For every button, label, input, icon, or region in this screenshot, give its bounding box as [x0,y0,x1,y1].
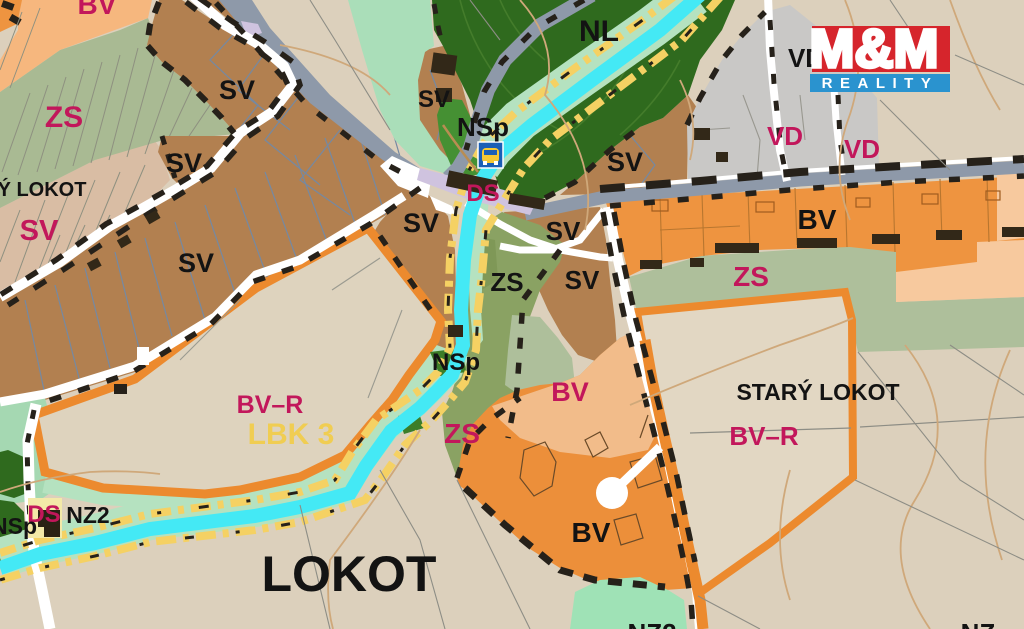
svg-text:NZ: NZ [961,618,996,629]
svg-text:SV: SV [166,148,202,178]
svg-text:VD: VD [844,134,880,164]
svg-text:SV: SV [607,147,643,177]
svg-text:LBK 3: LBK 3 [248,418,335,451]
svg-text:SV: SV [565,265,600,295]
svg-text:BV: BV [798,204,837,235]
svg-text:VD: VD [767,121,803,151]
svg-text:STARÝ LOKOT: STARÝ LOKOT [736,378,899,405]
svg-text:DS: DS [466,180,499,207]
svg-text:M&M: M&M [810,19,939,79]
svg-text:SV: SV [178,248,214,278]
svg-text:NZ2: NZ2 [66,502,109,528]
svg-text:ZS: ZS [45,101,83,134]
svg-text:BV–R: BV–R [237,391,304,419]
svg-text:BV: BV [572,517,611,548]
svg-text:SV: SV [403,208,439,238]
svg-text:ZS: ZS [490,267,523,297]
svg-text:SV: SV [219,75,255,105]
svg-text:NSp: NSp [432,349,480,376]
svg-text:SV: SV [546,216,581,246]
svg-text:NL: NL [579,15,619,48]
svg-text:BV–R: BV–R [729,421,799,451]
svg-text:NSp: NSp [457,112,509,142]
svg-text:ZS: ZS [444,418,480,449]
svg-text:SV: SV [20,215,59,247]
svg-text:BV: BV [78,0,117,20]
svg-text:NSp: NSp [0,513,37,539]
svg-text:BV: BV [551,377,589,407]
svg-text:ZS: ZS [733,261,769,292]
svg-text:NZ2: NZ2 [627,618,676,629]
svg-text:SV: SV [418,86,450,113]
svg-text:Ý LOKOT: Ý LOKOT [0,177,86,201]
svg-text:LOKOT: LOKOT [262,546,437,602]
svg-text:REALITY: REALITY [822,75,939,92]
